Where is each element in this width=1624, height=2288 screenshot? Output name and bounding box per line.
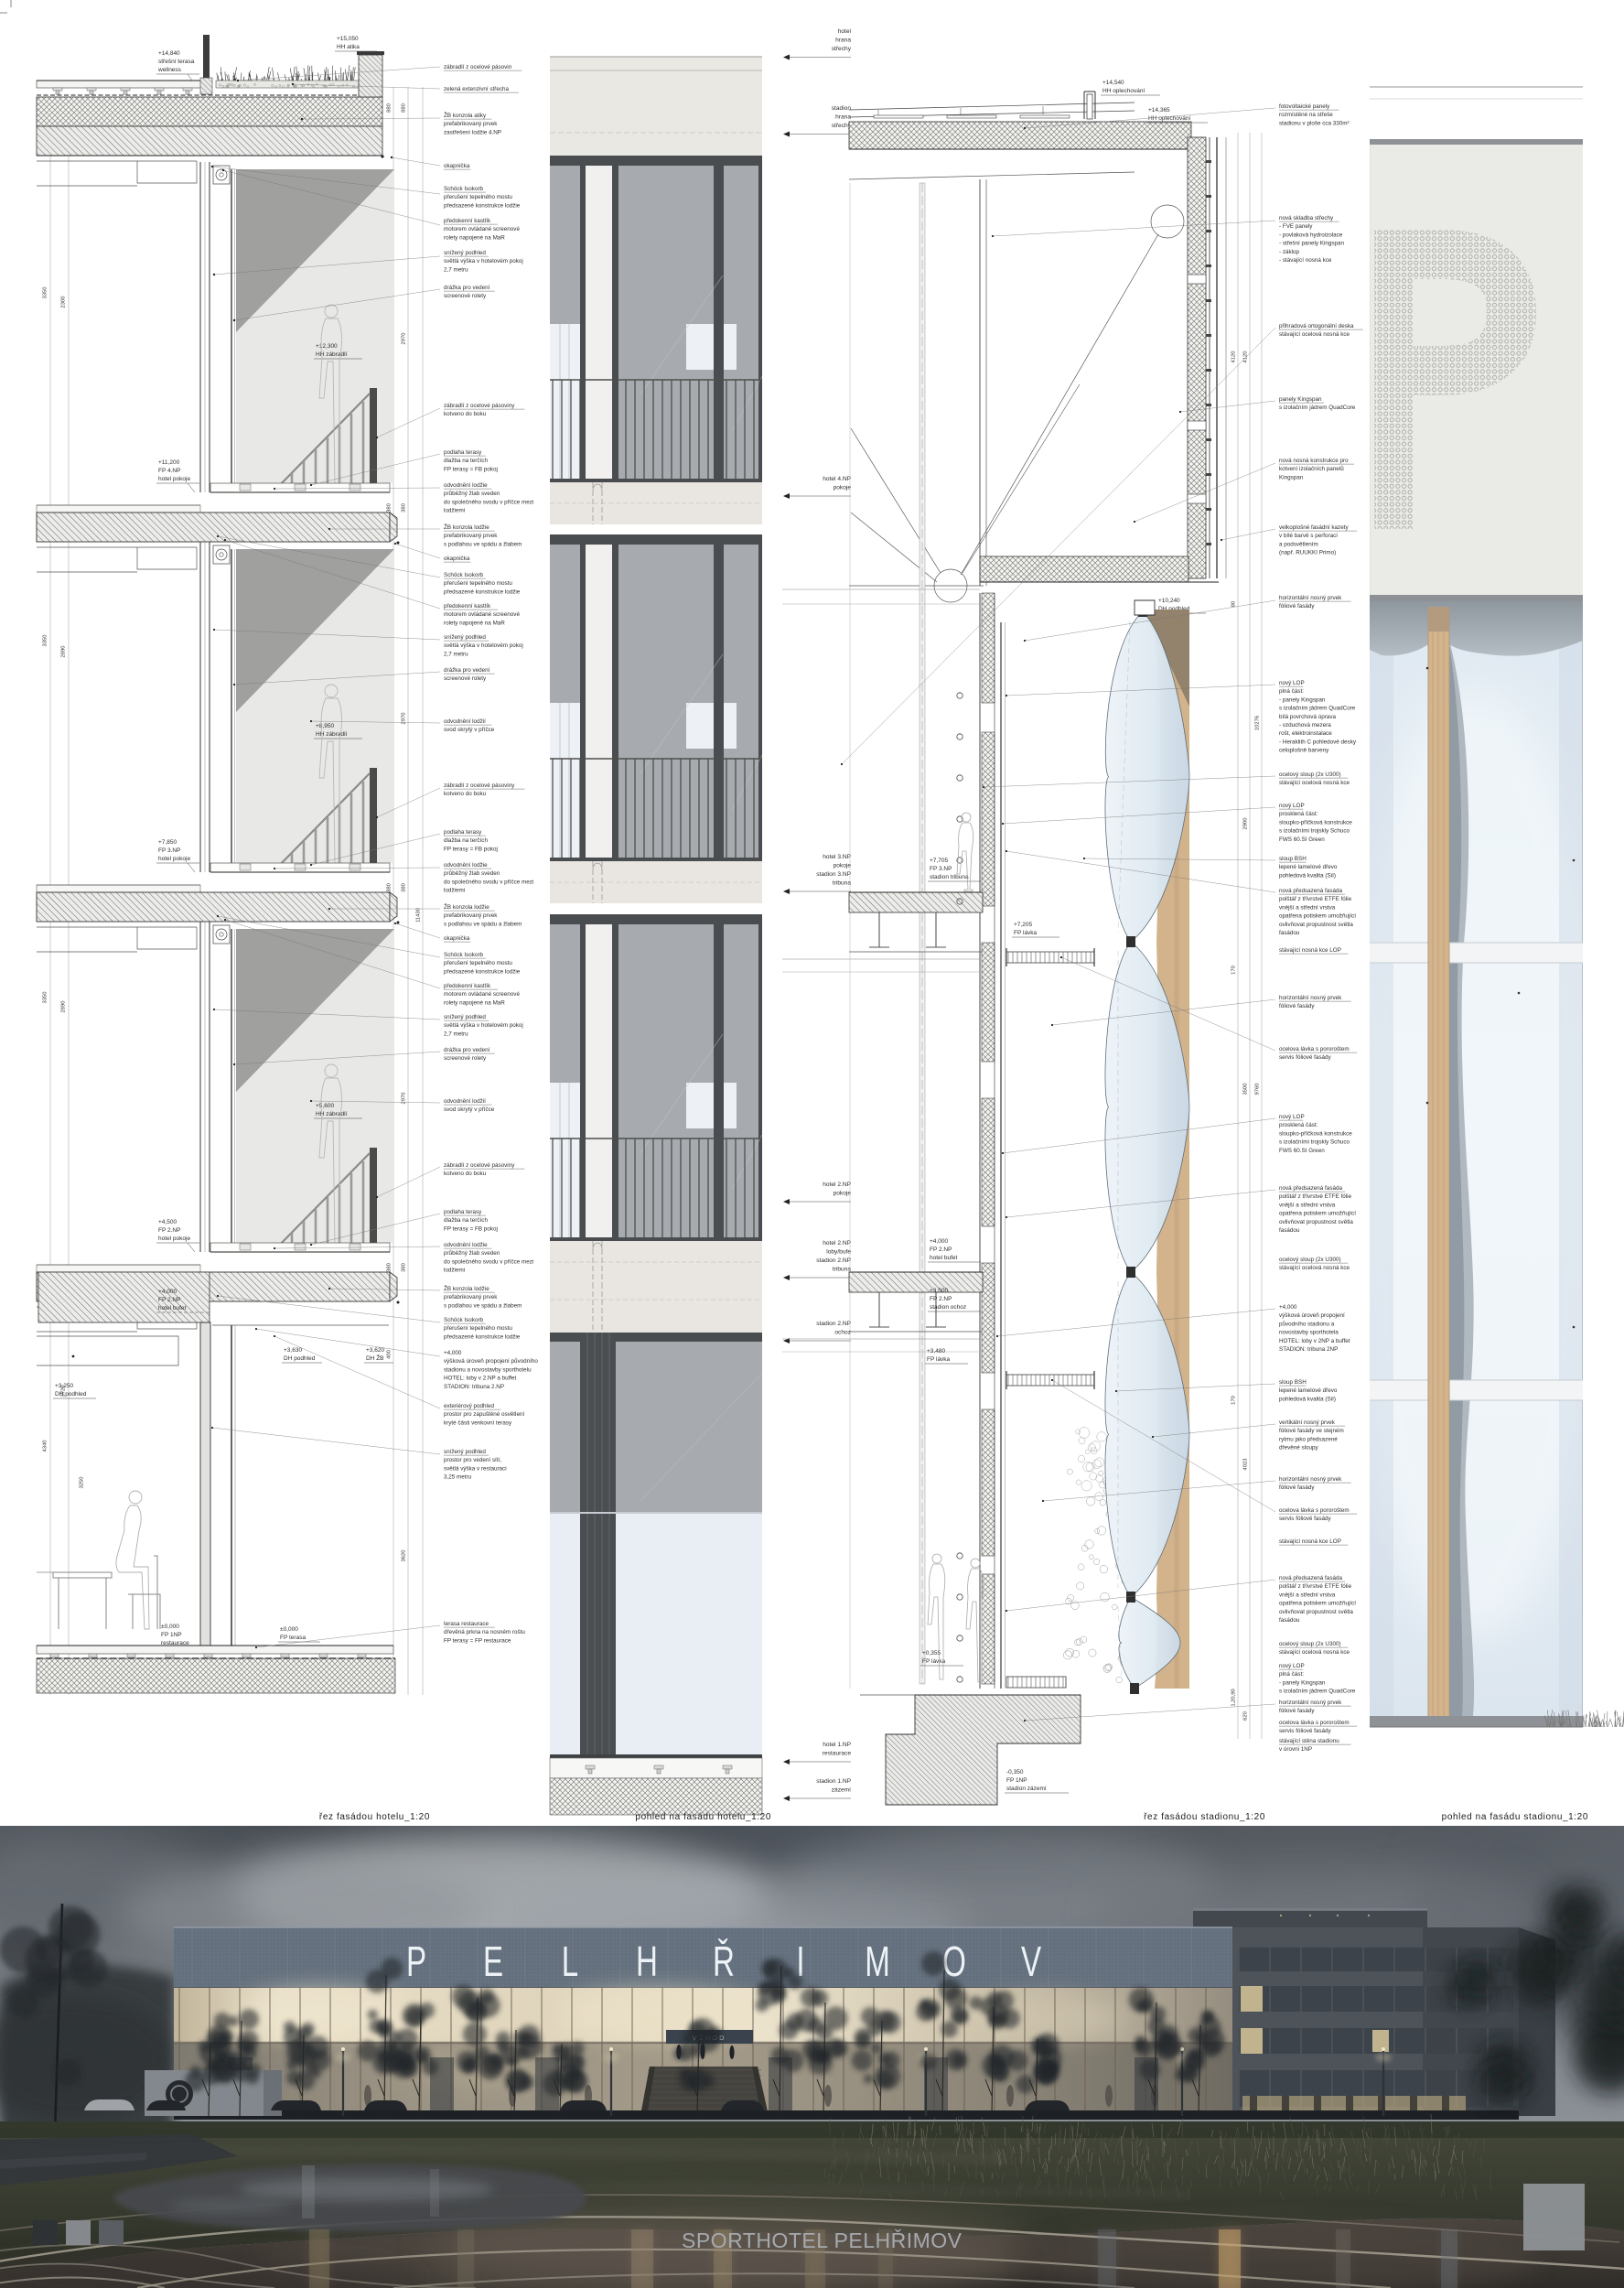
svg-text:průběžný žlab sveden: průběžný žlab sveden <box>444 490 500 497</box>
svg-text:1,20,90: 1,20,90 <box>1231 1689 1237 1706</box>
svg-text:+3,620: +3,620 <box>366 1347 384 1354</box>
svg-text:hotel bufet: hotel bufet <box>930 1255 958 1261</box>
svg-text:do společného svodu v příčce m: do společného svodu v příčce mezi <box>444 1258 533 1265</box>
svg-text:střešní terasa: střešní terasa <box>158 59 195 65</box>
svg-text:fóliové fasády: fóliové fasády <box>1279 603 1315 610</box>
svg-text:stadion: stadion <box>832 105 852 112</box>
svg-text:pokoje: pokoje <box>834 1191 852 1197</box>
svg-text:sloupko-příčková konstrukce: sloupko-příčková konstrukce <box>1279 1130 1352 1137</box>
svg-text:stadion ochoz: stadion ochoz <box>930 1304 966 1311</box>
svg-text:380: 380 <box>387 883 393 892</box>
svg-text:servis fóliové fasády: servis fóliové fasády <box>1279 1728 1332 1734</box>
svg-text:FP terasa: FP terasa <box>280 1635 306 1641</box>
svg-text:+3,500: +3,500 <box>930 1288 948 1294</box>
svg-text:HH zábradlí: HH zábradlí <box>316 351 348 358</box>
svg-text:pohledová kvalita (SiI): pohledová kvalita (SiI) <box>1279 1396 1336 1402</box>
svg-text:stávající stěna stadionu: stávající stěna stadionu <box>1279 1738 1339 1744</box>
svg-text:panely Kingspan: panely Kingspan <box>1279 396 1322 403</box>
svg-text:wellness: wellness <box>157 67 182 73</box>
svg-text:stadionu a novostavby sporthot: stadionu a novostavby sporthotelu <box>444 1366 532 1373</box>
svg-text:2890: 2890 <box>61 1001 67 1013</box>
svg-text:screenové rolety: screenové rolety <box>444 675 487 682</box>
svg-text:odvodnění lodžie: odvodnění lodžie <box>444 1242 488 1248</box>
svg-text:nová nosná konstrukce pro: nová nosná konstrukce pro <box>1279 458 1349 464</box>
svg-text:podlaha terasy: podlaha terasy <box>444 1209 482 1215</box>
svg-text:rolety napojené na MaR: rolety napojené na MaR <box>444 999 505 1006</box>
svg-text:rozmístěné na střeše: rozmístěné na střeše <box>1279 112 1333 118</box>
svg-text:ovlivňovat propustnost světla: ovlivňovat propustnost světla <box>1279 1609 1353 1615</box>
svg-text:FP lávka: FP lávka <box>1014 930 1038 936</box>
svg-text:2900: 2900 <box>1243 818 1249 830</box>
svg-text:horizontální nosný prvek: horizontální nosný prvek <box>1279 595 1342 601</box>
svg-text:exteriérový podhled: exteriérový podhled <box>444 1403 494 1409</box>
svg-text:střechy: střechy <box>832 46 852 52</box>
svg-text:stadion 1.NP: stadion 1.NP <box>816 1778 851 1785</box>
svg-text:lepené lamelové dřevo: lepené lamelové dřevo <box>1279 864 1338 870</box>
svg-text:+14,365: +14,365 <box>1148 107 1170 113</box>
svg-text:kotvení izolačních panelů: kotvení izolačních panelů <box>1279 465 1344 472</box>
svg-text:±0,000: ±0,000 <box>280 1626 298 1633</box>
svg-text:FP 1NP: FP 1NP <box>1006 1777 1027 1784</box>
svg-text:s izolačním jádrem QuadCore: s izolačním jádrem QuadCore <box>1279 405 1356 411</box>
svg-text:s izolačním jádrem QuadCore: s izolačním jádrem QuadCore <box>1279 1689 1356 1695</box>
svg-text:hotel 2.NP: hotel 2.NP <box>823 1182 851 1188</box>
svg-text:horizontální nosný prvek: horizontální nosný prvek <box>1279 1700 1342 1706</box>
svg-text:FWS 60.SI Green: FWS 60.SI Green <box>1279 1148 1325 1154</box>
svg-text:prosklená část:: prosklená část: <box>1279 811 1318 817</box>
svg-text:horizontální nosný prvek: horizontální nosný prvek <box>1279 995 1342 1001</box>
svg-text:FWS 60.SI Green: FWS 60.SI Green <box>1279 836 1325 843</box>
svg-text:a podsvětlením: a podsvětlením <box>1279 541 1318 547</box>
svg-text:motorem ovládané screenové: motorem ovládané screenové <box>444 991 520 998</box>
svg-text:přerušení tepelného mostu: přerušení tepelného mostu <box>444 194 512 200</box>
svg-text:vnější a střední vrstva: vnější a střední vrstva <box>1279 1592 1336 1598</box>
svg-text:pohledová kvalita (SiI): pohledová kvalita (SiI) <box>1279 872 1336 879</box>
svg-text:lodžiemi: lodžiemi <box>444 508 465 514</box>
svg-text:celoplošně barveny: celoplošně barveny <box>1279 748 1329 754</box>
svg-text:vnější a střední vrstva: vnější a střední vrstva <box>1279 1202 1336 1208</box>
svg-text:přerušení tepelného mostu: přerušení tepelného mostu <box>444 580 512 587</box>
svg-text:v úrovni 1NP: v úrovni 1NP <box>1279 1746 1312 1753</box>
svg-text:M: M <box>865 1939 890 1985</box>
svg-text:lodžiemi: lodžiemi <box>444 888 465 894</box>
svg-text:rytmu jako předsazené: rytmu jako předsazené <box>1279 1436 1338 1442</box>
svg-text:- FVE panely: - FVE panely <box>1279 223 1313 230</box>
svg-text:+4,500: +4,500 <box>158 1219 177 1225</box>
svg-text:ocelový sloup (2x U300): ocelový sloup (2x U300) <box>1279 1641 1341 1647</box>
svg-text:+4,000: +4,000 <box>158 1289 177 1295</box>
svg-text:přerušení tepelného mostu: přerušení tepelného mostu <box>444 1325 512 1332</box>
svg-text:+15,050: +15,050 <box>337 36 359 42</box>
svg-text:H: H <box>636 1939 658 1985</box>
svg-text:původního stadionu a: původního stadionu a <box>1279 1320 1335 1327</box>
svg-text:L: L <box>562 1939 578 1985</box>
svg-text:servis fóliové fasády: servis fóliové fasády <box>1279 1054 1332 1061</box>
svg-text:kotveno do boku: kotveno do boku <box>444 791 487 797</box>
svg-text:tribuna: tribuna <box>833 880 851 887</box>
svg-text:fóliové fasády ve stejném: fóliové fasády ve stejném <box>1279 1428 1344 1434</box>
svg-text:Schöck Isokorb: Schöck Isokorb <box>444 952 484 958</box>
svg-text:nový LOP: nový LOP <box>1279 803 1305 809</box>
svg-text:+3,250: +3,250 <box>55 1383 73 1389</box>
svg-text:fasádou: fasádou <box>1279 930 1300 936</box>
svg-text:stadionu v ploše cca 330m²: stadionu v ploše cca 330m² <box>1279 120 1350 126</box>
svg-text:drážka pro vedení: drážka pro vedení <box>444 285 490 291</box>
svg-text:+8,950: +8,950 <box>316 723 334 729</box>
svg-text:předokenní kastlík: předokenní kastlík <box>444 603 491 610</box>
svg-text:FP 2.NP: FP 2.NP <box>158 1227 180 1234</box>
svg-text:s podlahou ve spádu a žlabem: s podlahou ve spádu a žlabem <box>444 1302 522 1309</box>
svg-text:ocelový sloup (2x U300): ocelový sloup (2x U300) <box>1279 1257 1341 1263</box>
svg-text:výšková úroveň propojení původ: výšková úroveň propojení původního <box>444 1357 538 1365</box>
svg-text:servis fóliové fasády: servis fóliové fasády <box>1279 1516 1332 1522</box>
svg-text:kotveno do boku: kotveno do boku <box>444 411 487 417</box>
svg-text:dlažba na terčích: dlažba na terčích <box>444 837 488 844</box>
svg-text:FP 4.NP: FP 4.NP <box>158 468 180 474</box>
svg-text:předsazené konstrukce lodžie: předsazené konstrukce lodžie <box>444 968 521 975</box>
svg-text:přihradová ortogonální deska: přihradová ortogonální deska <box>1279 323 1354 329</box>
svg-text:průběžný žlab sveden: průběžný žlab sveden <box>444 1249 500 1257</box>
svg-text:světlá výška v hotelovém pokoj: světlá výška v hotelovém pokoj <box>444 1022 523 1029</box>
svg-text:380: 380 <box>387 503 393 513</box>
svg-text:kotveno do boku: kotveno do boku <box>444 1171 487 1177</box>
svg-text:+7,850: +7,850 <box>158 839 177 846</box>
svg-text:380: 380 <box>402 503 407 513</box>
svg-text:okapnička: okapnička <box>444 935 470 942</box>
svg-text:stávající nosná kce LOP: stávající nosná kce LOP <box>1279 1538 1341 1545</box>
svg-text:dřevěné sloupy: dřevěné sloupy <box>1279 1445 1319 1452</box>
svg-text:HH zábradlí: HH zábradlí <box>316 1111 348 1117</box>
svg-text:ovlivňovat propustnost světla: ovlivňovat propustnost světla <box>1279 922 1353 928</box>
svg-text:prefabrikovaný prvek: prefabrikovaný prvek <box>444 912 498 919</box>
svg-text:polštář z třívrstvé ETFE fóli: polštář z třívrstvé ETFE fólie <box>1279 1583 1352 1590</box>
svg-text:snížený podhled: snížený podhled <box>444 1449 486 1455</box>
svg-text:+4,000: +4,000 <box>444 1350 462 1356</box>
svg-text:prosklená část:: prosklená část: <box>1279 1122 1318 1128</box>
svg-text:+4,000: +4,000 <box>930 1238 948 1245</box>
svg-text:snížený podhled: snížený podhled <box>444 1014 486 1020</box>
svg-text:Schöck Isokorb: Schöck Isokorb <box>444 1317 484 1323</box>
svg-text:hotel 3.NP: hotel 3.NP <box>823 854 851 860</box>
svg-text:FP terasy = FB pokoj: FP terasy = FB pokoj <box>444 846 498 852</box>
svg-text:odvodnění lodžie: odvodnění lodžie <box>444 482 488 489</box>
svg-text:stadion 2.NP: stadion 2.NP <box>816 1321 851 1327</box>
svg-text:tribuna: tribuna <box>833 1267 851 1273</box>
svg-text:fotovoltaické panely: fotovoltaické panely <box>1279 103 1330 110</box>
svg-text:podlaha terasy: podlaha terasy <box>444 829 482 836</box>
svg-text:zábradlí z ocelové pásoviny: zábradlí z ocelové pásoviny <box>444 782 515 789</box>
svg-text:+12,300: +12,300 <box>316 343 338 350</box>
svg-text:hotel pokoje: hotel pokoje <box>158 856 190 862</box>
svg-text:screenové rolety: screenové rolety <box>444 293 487 299</box>
svg-text:10276: 10276 <box>1255 716 1261 730</box>
svg-text:FP terasy = FB pokoj: FP terasy = FB pokoj <box>444 1225 498 1232</box>
svg-text:+11,200: +11,200 <box>158 459 180 466</box>
svg-text:+3,630: +3,630 <box>284 1347 302 1354</box>
svg-text:přerušení tepelného mostu: přerušení tepelného mostu <box>444 960 512 966</box>
svg-text:FP 1NP: FP 1NP <box>161 1632 182 1638</box>
svg-text:ocelova lávka s pororoštem: ocelova lávka s pororoštem <box>1279 1046 1350 1052</box>
svg-text:- panely Kingspan: - panely Kingspan <box>1279 696 1326 703</box>
svg-text:drážka pro vedení: drážka pro vedení <box>444 1047 490 1053</box>
svg-text:lepené lamelové dřevo: lepené lamelové dřevo <box>1279 1387 1338 1394</box>
svg-text:stávající nosná kce LOP: stávající nosná kce LOP <box>1279 947 1341 954</box>
svg-text:FP 2.NP: FP 2.NP <box>930 1247 952 1253</box>
svg-text:sloupko-příčková konstrukce: sloupko-příčková konstrukce <box>1279 819 1352 826</box>
svg-text:HOTEL: loby v 2.NP a buffet: HOTEL: loby v 2.NP a buffet <box>444 1376 516 1382</box>
svg-text:vnější a střední vrstva: vnější a střední vrstva <box>1279 904 1336 911</box>
svg-text:HH zábradlí: HH zábradlí <box>316 731 348 738</box>
svg-text:s izolačními trojskly Schuco: s izolačními trojskly Schuco <box>1279 1139 1350 1146</box>
svg-text:(např. RUUKKI Primo): (např. RUUKKI Primo) <box>1279 550 1336 556</box>
svg-text:FP lávka: FP lávka <box>922 1658 946 1665</box>
svg-text:drážka pro vedení: drážka pro vedení <box>444 667 490 674</box>
svg-text:svod skrytý v příčce: svod skrytý v příčce <box>444 727 495 733</box>
svg-text:svod skrytý v příčce: svod skrytý v příčce <box>444 1106 495 1113</box>
svg-text:-0,350: -0,350 <box>1006 1769 1024 1775</box>
svg-text:Kingspan: Kingspan <box>1279 474 1304 480</box>
svg-text:STADION: tribuna 2NP: STADION: tribuna 2NP <box>1279 1346 1338 1353</box>
svg-text:sloup BSH: sloup BSH <box>1279 1379 1307 1386</box>
svg-text:380: 380 <box>402 883 407 892</box>
svg-text:2890: 2890 <box>61 646 67 658</box>
svg-text:3620: 3620 <box>402 1550 407 1562</box>
svg-text:+5,600: +5,600 <box>316 1103 334 1109</box>
svg-text:terasa restaurace: terasa restaurace <box>444 1621 489 1627</box>
svg-text:plná část:: plná část: <box>1279 1671 1304 1678</box>
svg-text:+14,540: +14,540 <box>1102 80 1124 86</box>
svg-text:+14,840: +14,840 <box>158 50 180 57</box>
svg-text:kryté části venkovní terasy: kryté části venkovní terasy <box>444 1419 512 1426</box>
svg-text:loby/bufe: loby/bufe <box>826 1249 851 1256</box>
svg-text:fóliové fasády: fóliové fasády <box>1279 1708 1315 1714</box>
svg-text:opatřena potiskem umožňující: opatřena potiskem umožňující <box>1279 913 1356 920</box>
svg-text:prostor pro vedení sítí,: prostor pro vedení sítí, <box>444 1457 501 1463</box>
svg-text:prefabrikovaný prvek: prefabrikovaný prvek <box>444 121 498 127</box>
svg-text:880: 880 <box>402 103 407 113</box>
svg-text:do společného svodu v příčce m: do společného svodu v příčce mezi <box>444 879 533 885</box>
svg-text:řez fasádou stadionu_1:20: řez fasádou stadionu_1:20 <box>1144 1812 1265 1822</box>
svg-text:prefabrikovaný prvek: prefabrikovaný prvek <box>444 533 498 539</box>
svg-text:+0,355: +0,355 <box>922 1650 941 1657</box>
svg-text:vertikální nosný prvek: vertikální nosný prvek <box>1279 1419 1336 1426</box>
svg-text:hrana: hrana <box>835 114 851 121</box>
svg-text:380: 380 <box>402 1263 407 1272</box>
svg-text:restaurace: restaurace <box>823 1751 851 1757</box>
svg-text:2300: 2300 <box>61 297 67 308</box>
svg-text:4120: 4120 <box>1231 351 1237 363</box>
svg-text:opatřena potiskem umožňující: opatřena potiskem umožňující <box>1279 1601 1356 1607</box>
svg-text:snížený podhled: snížený podhled <box>444 634 486 641</box>
svg-text:stávající ocelová nosná kce: stávající ocelová nosná kce <box>1279 1649 1350 1656</box>
svg-text:sloup BSH: sloup BSH <box>1279 856 1307 862</box>
svg-text:3250: 3250 <box>80 1477 85 1489</box>
svg-text:zábradlí z ocelové pásoviny: zábradlí z ocelové pásoviny <box>444 403 515 409</box>
svg-text:9760: 9760 <box>1255 1084 1261 1095</box>
svg-text:pohled na fasádu hotelu_1:20: pohled na fasádu hotelu_1:20 <box>635 1812 771 1822</box>
svg-text:s izolačním jádrem QuadCore: s izolačním jádrem QuadCore <box>1279 706 1356 712</box>
svg-text:170: 170 <box>1231 966 1237 975</box>
svg-text:pohled na fasádu stadionu_1:20: pohled na fasádu stadionu_1:20 <box>1442 1812 1588 1822</box>
svg-text:hotel 4.NP: hotel 4.NP <box>823 476 851 482</box>
svg-text:zábradlí z ocelové pásovin: zábradlí z ocelové pásovin <box>444 64 512 70</box>
svg-text:+3,480: +3,480 <box>927 1348 945 1354</box>
svg-text:s podlahou ve spádu a žlabem: s podlahou ve spádu a žlabem <box>444 541 522 547</box>
svg-text:stadion 3.NP: stadion 3.NP <box>816 871 851 878</box>
svg-text:hotel bufet: hotel bufet <box>158 1305 187 1311</box>
svg-text:+7,705: +7,705 <box>930 858 948 864</box>
svg-text:dlažba na terčích: dlažba na terčích <box>444 458 488 464</box>
svg-text:bílá povrchová úprava: bílá povrchová úprava <box>1279 714 1336 720</box>
svg-text:restaurace: restaurace <box>161 1640 189 1646</box>
svg-text:stávající ocelová nosná kce: stávající ocelová nosná kce <box>1279 331 1350 338</box>
svg-text:zázemí: zázemí <box>832 1787 851 1794</box>
svg-text:Ř: Ř <box>713 1938 735 1986</box>
svg-text:fasádou: fasádou <box>1279 1227 1300 1234</box>
svg-text:stadion 2.NP: stadion 2.NP <box>816 1257 851 1264</box>
svg-text:stadion tribuna: stadion tribuna <box>930 874 969 880</box>
svg-text:2,7 metru: 2,7 metru <box>444 1031 468 1037</box>
svg-text:ochoz: ochoz <box>834 1330 851 1336</box>
svg-text:O: O <box>942 1939 966 1985</box>
svg-text:400: 400 <box>387 1350 393 1359</box>
svg-text:světlá výška v hotelovém pokoj: světlá výška v hotelovém pokoj <box>444 642 523 649</box>
svg-text:do společného svodu v příčce m: do společného svodu v příčce mezi <box>444 499 533 505</box>
svg-text:FP 3.NP: FP 3.NP <box>158 847 180 854</box>
svg-text:okapnička: okapnička <box>444 163 470 169</box>
svg-text:+4,000: +4,000 <box>1279 1304 1297 1311</box>
svg-text:±0,000: ±0,000 <box>161 1624 179 1630</box>
svg-text:170: 170 <box>1231 1396 1237 1405</box>
svg-text:polštář z třívrstvé ETFE fóli: polštář z třívrstvé ETFE fólie <box>1279 1193 1352 1200</box>
svg-text:STADION: tribuna 2.NP: STADION: tribuna 2.NP <box>444 1384 504 1390</box>
svg-text:HH oplechování: HH oplechování <box>1102 88 1145 94</box>
svg-text:nový LOP: nový LOP <box>1279 680 1305 686</box>
svg-text:pokoje: pokoje <box>834 863 852 869</box>
svg-text:ŽB konzola lodžie: ŽB konzola lodžie <box>444 902 489 911</box>
svg-text:P: P <box>406 1939 426 1985</box>
svg-text:nová předsazená fasáda: nová předsazená fasáda <box>1279 1185 1342 1192</box>
svg-text:okapnička: okapnička <box>444 556 470 562</box>
svg-text:prostor pro zapuštěné osvětlen: prostor pro zapuštěné osvětlení <box>444 1411 524 1418</box>
svg-text:HH oplechování: HH oplechování <box>1148 115 1190 122</box>
svg-text:+10,240: +10,240 <box>1158 598 1180 604</box>
svg-text:- povlaková hydroizolace: - povlaková hydroizolace <box>1279 232 1343 238</box>
svg-text:motorem ovládané screenové: motorem ovládané screenové <box>444 611 520 618</box>
svg-text:nový LOP: nový LOP <box>1279 1663 1305 1669</box>
svg-text:v bílé barvě s perforací: v bílé barvě s perforací <box>1279 533 1338 539</box>
svg-text:HH atika: HH atika <box>337 44 360 50</box>
svg-text:3350: 3350 <box>43 635 48 647</box>
svg-text:620: 620 <box>1243 1711 1249 1721</box>
svg-text:nová předsazená fasáda: nová předsazená fasáda <box>1279 888 1342 894</box>
svg-text:výšková úroveň propojení: výšková úroveň propojení <box>1279 1312 1345 1319</box>
svg-text:fóliové fasády: fóliové fasády <box>1279 1484 1315 1491</box>
svg-text:DH podhled: DH podhled <box>284 1355 316 1362</box>
svg-text:předokenní kastlík: předokenní kastlík <box>444 218 491 224</box>
svg-text:2,7 metru: 2,7 metru <box>444 266 468 273</box>
svg-text:2,7 metru: 2,7 metru <box>444 651 468 657</box>
svg-text:ŽB konzola lodžie: ŽB konzola lodžie <box>444 1284 489 1292</box>
svg-text:ocelova lávka s pororoštem: ocelova lávka s pororoštem <box>1279 1720 1350 1726</box>
svg-text:průběžný žlab sveden: průběžný žlab sveden <box>444 869 500 877</box>
svg-text:hotel: hotel <box>838 28 852 35</box>
svg-text:DH ŽB: DH ŽB <box>366 1354 384 1362</box>
svg-text:FP terasy = FB pokoj: FP terasy = FB pokoj <box>444 466 498 472</box>
svg-text:ovlivňovat propustnost světla: ovlivňovat propustnost světla <box>1279 1219 1353 1225</box>
svg-text:nový LOP: nový LOP <box>1279 1114 1305 1120</box>
svg-text:3,25 metru: 3,25 metru <box>444 1474 472 1481</box>
svg-text:pokoje: pokoje <box>834 485 852 491</box>
svg-text:stávající ocelová nosná kce: stávající ocelová nosná kce <box>1279 780 1350 786</box>
svg-text:opatřena potiskem umožňující: opatřena potiskem umožňující <box>1279 1211 1356 1217</box>
svg-text:nová předsazená fasáda: nová předsazená fasáda <box>1279 1575 1342 1581</box>
svg-text:880: 880 <box>387 103 393 113</box>
svg-text:2970: 2970 <box>402 333 407 345</box>
svg-text:rolety napojené na MaR: rolety napojené na MaR <box>444 234 505 241</box>
svg-text:- vzduchová mezera: - vzduchová mezera <box>1279 722 1331 728</box>
svg-text:řez fasádou hotelu_1:20: řez fasádou hotelu_1:20 <box>319 1812 430 1822</box>
svg-text:stadion zázemí: stadion zázemí <box>1006 1786 1047 1792</box>
svg-text:světlá výška v hotelovém pokoj: světlá výška v hotelovém pokoj <box>444 258 523 264</box>
svg-text:stávající ocelová nosná kce: stávající ocelová nosná kce <box>1279 1265 1350 1271</box>
svg-text:+7,205: +7,205 <box>1014 922 1032 928</box>
svg-text:FP 2.NP: FP 2.NP <box>930 1296 952 1302</box>
svg-text:nová skladba střechy: nová skladba střechy <box>1279 215 1334 221</box>
svg-text:dlažba na terčích: dlažba na terčích <box>444 1217 488 1224</box>
svg-text:hotel pokoje: hotel pokoje <box>158 1236 190 1242</box>
svg-text:světlá výška v restauraci: světlá výška v restauraci <box>444 1465 507 1472</box>
svg-text:V: V <box>1021 1939 1041 1985</box>
svg-text:odvodnění lodžií: odvodnění lodžií <box>444 1098 486 1105</box>
svg-text:odvodnění lodžie: odvodnění lodžie <box>444 862 488 869</box>
svg-text:FP 2.NP: FP 2.NP <box>158 1297 180 1303</box>
svg-text:3350: 3350 <box>43 287 48 299</box>
svg-text:screenové rolety: screenové rolety <box>444 1055 487 1062</box>
svg-text:předsazené konstrukce lodžie: předsazené konstrukce lodžie <box>444 1333 521 1340</box>
svg-text:380: 380 <box>387 1263 393 1272</box>
svg-text:motorem ovládané screenové: motorem ovládané screenové <box>444 226 520 232</box>
svg-text:ocelový sloup (2x U300): ocelový sloup (2x U300) <box>1279 772 1341 778</box>
svg-text:E: E <box>483 1939 503 1985</box>
svg-text:dřevěná prkna na nosném roštu: dřevěná prkna na nosném roštu <box>444 1629 525 1635</box>
svg-text:podlaha terasy: podlaha terasy <box>444 449 482 456</box>
svg-text:zastřešení lodžie 4.NP: zastřešení lodžie 4.NP <box>444 129 501 135</box>
svg-text:plná část:: plná část: <box>1279 688 1304 695</box>
svg-text:FP 3.NP: FP 3.NP <box>930 866 952 872</box>
svg-text:odvodnění lodžií: odvodnění lodžií <box>444 718 486 725</box>
svg-text:zábradlí z ocelové pásoviny: zábradlí z ocelové pásoviny <box>444 1162 515 1169</box>
svg-text:hotel 2.NP: hotel 2.NP <box>823 1240 851 1247</box>
svg-text:prefabrikovaný prvek: prefabrikovaný prvek <box>444 1294 498 1300</box>
svg-text:- Heraklith C pohledové desky: - Heraklith C pohledové desky <box>1279 739 1357 745</box>
svg-text:SPORTHOTEL PELHŘIMOV: SPORTHOTEL PELHŘIMOV <box>682 2229 963 2252</box>
svg-text:fóliové fasády: fóliové fasády <box>1279 1003 1315 1009</box>
svg-text:ŽB konzola atiky: ŽB konzola atiky <box>444 111 487 119</box>
svg-text:- záklop: - záklop <box>1279 249 1300 255</box>
svg-text:hotel 1.NP: hotel 1.NP <box>823 1742 851 1748</box>
svg-text:novostavby sporthotela: novostavby sporthotela <box>1279 1330 1339 1336</box>
svg-text:rolety napojené na MaR: rolety napojené na MaR <box>444 620 505 626</box>
svg-text:lodžiemi: lodžiemi <box>444 1268 465 1274</box>
svg-text:FP lávka: FP lávka <box>927 1356 951 1363</box>
svg-text:- panely Kingspan: - panely Kingspan <box>1279 1679 1326 1686</box>
svg-text:velkoplošné fasádní kazety: velkoplošné fasádní kazety <box>1279 524 1349 531</box>
svg-text:střechy: střechy <box>832 123 852 129</box>
svg-text:předokenní kastlík: předokenní kastlík <box>444 983 491 989</box>
svg-text:ocelova lávka s pororoštem: ocelova lávka s pororoštem <box>1279 1507 1350 1514</box>
svg-text:Schöck Isokorb: Schöck Isokorb <box>444 572 484 578</box>
